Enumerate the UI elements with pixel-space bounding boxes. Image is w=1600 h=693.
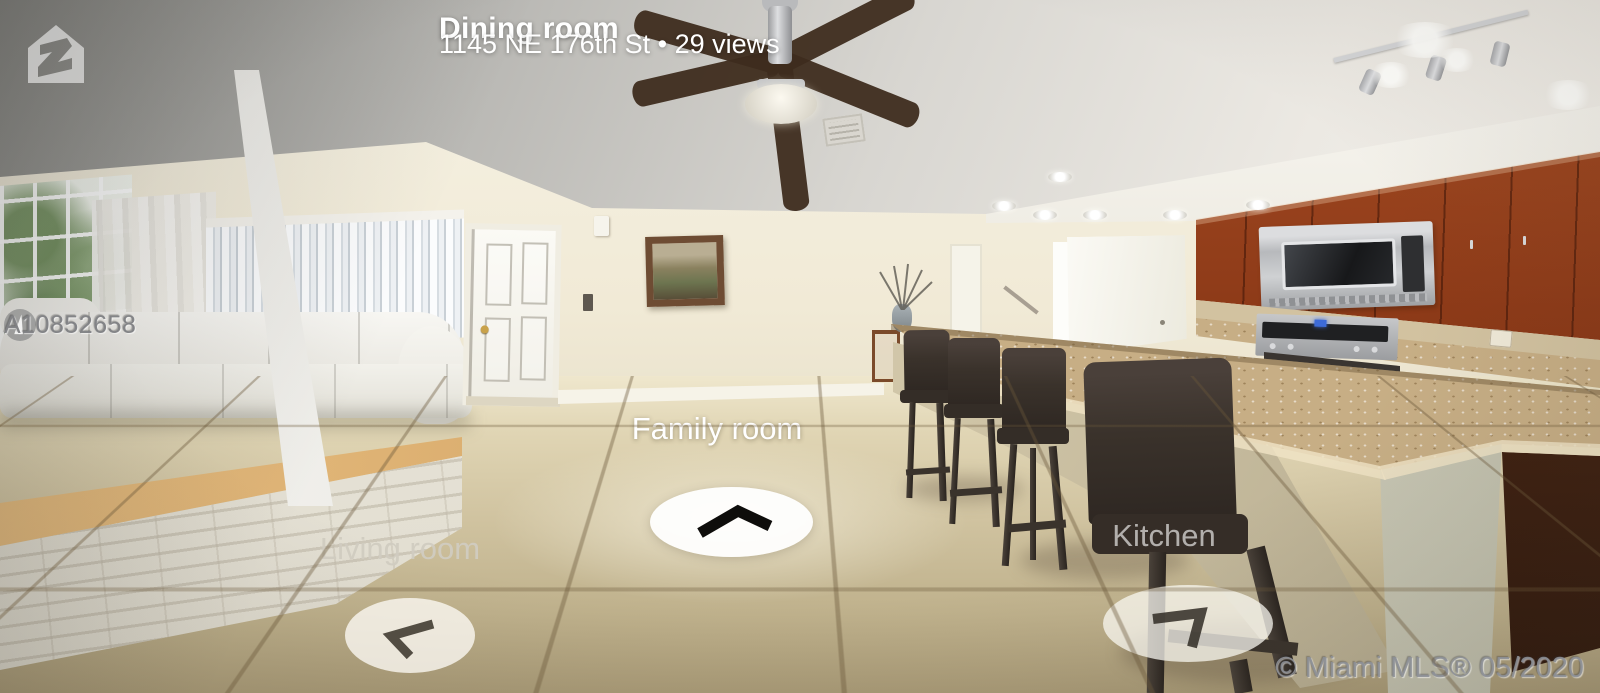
cabinet-handle xyxy=(1523,236,1526,245)
hotspot-label-living-room[interactable]: Living room xyxy=(320,531,480,567)
light-switch xyxy=(583,294,593,311)
recessed-light xyxy=(1083,210,1107,220)
bar-stool-back xyxy=(1083,357,1237,524)
door-panel xyxy=(520,316,547,381)
recessed-light xyxy=(1163,210,1187,220)
cabinet-handle xyxy=(1470,240,1473,249)
foyer-door xyxy=(468,229,556,401)
over-range-microwave xyxy=(1259,221,1436,311)
door-knob xyxy=(1160,320,1165,325)
address-and-views: 1145 NE 176th St • 29 views xyxy=(439,29,780,60)
hotspot-label-family-room[interactable]: Family room xyxy=(632,411,803,447)
zillow-logo-icon[interactable] xyxy=(27,24,85,84)
light-glow xyxy=(1368,62,1414,88)
door-panel xyxy=(521,242,548,305)
microwave-vent xyxy=(1269,293,1427,307)
bar-stool-seat xyxy=(944,404,1004,418)
door-threshold xyxy=(466,396,560,407)
recessed-light xyxy=(1048,172,1072,182)
chevron-right-down-icon xyxy=(1103,585,1273,662)
wall-outlet xyxy=(1489,329,1512,348)
bar-stool-back xyxy=(948,338,1000,408)
hallway-door xyxy=(1067,235,1187,355)
range-knob xyxy=(1270,343,1276,349)
bar-stool-back xyxy=(903,330,950,395)
light-glow xyxy=(1388,22,1462,58)
bar-stool-seat xyxy=(900,390,954,403)
vase-branches xyxy=(868,262,938,310)
range-knob xyxy=(1288,344,1294,350)
recessed-light xyxy=(992,201,1016,211)
bar-stool-seat xyxy=(997,428,1069,444)
microwave-control-panel xyxy=(1401,235,1425,292)
range-knob xyxy=(1353,346,1359,352)
hotspot-label-kitchen[interactable]: Kitchen xyxy=(1112,518,1215,554)
hotspot-button-kitchen[interactable] xyxy=(1103,585,1273,662)
sofa-shadow xyxy=(0,412,470,428)
light-glow xyxy=(1540,80,1596,110)
copyright-watermark: © Miami MLS® 05/2020 xyxy=(0,652,1584,685)
range-knob xyxy=(1371,347,1377,353)
ceiling-fan-light xyxy=(745,84,817,124)
framed-wall-art xyxy=(645,235,725,307)
chevron-up-icon xyxy=(650,487,813,557)
air-vent xyxy=(822,113,866,146)
alarm-keypad xyxy=(594,216,609,236)
hotspot-button-family-room[interactable] xyxy=(650,487,813,557)
sectional-sofa-seat xyxy=(0,364,472,418)
bar-stool-leg xyxy=(1030,448,1036,560)
hallway-door-far xyxy=(950,244,982,336)
panorama-photo[interactable] xyxy=(0,0,1600,693)
bar-stool-back xyxy=(1002,348,1066,432)
microwave-window xyxy=(1281,238,1397,290)
range-display xyxy=(1314,320,1326,327)
virtual-tour-viewer: Dining room 1145 NE 176th St • 29 views … xyxy=(0,0,1600,693)
listing-id: A10852658 xyxy=(4,311,136,340)
door-panel xyxy=(485,243,512,306)
recessed-light xyxy=(1246,200,1270,210)
recessed-light xyxy=(1033,210,1057,220)
